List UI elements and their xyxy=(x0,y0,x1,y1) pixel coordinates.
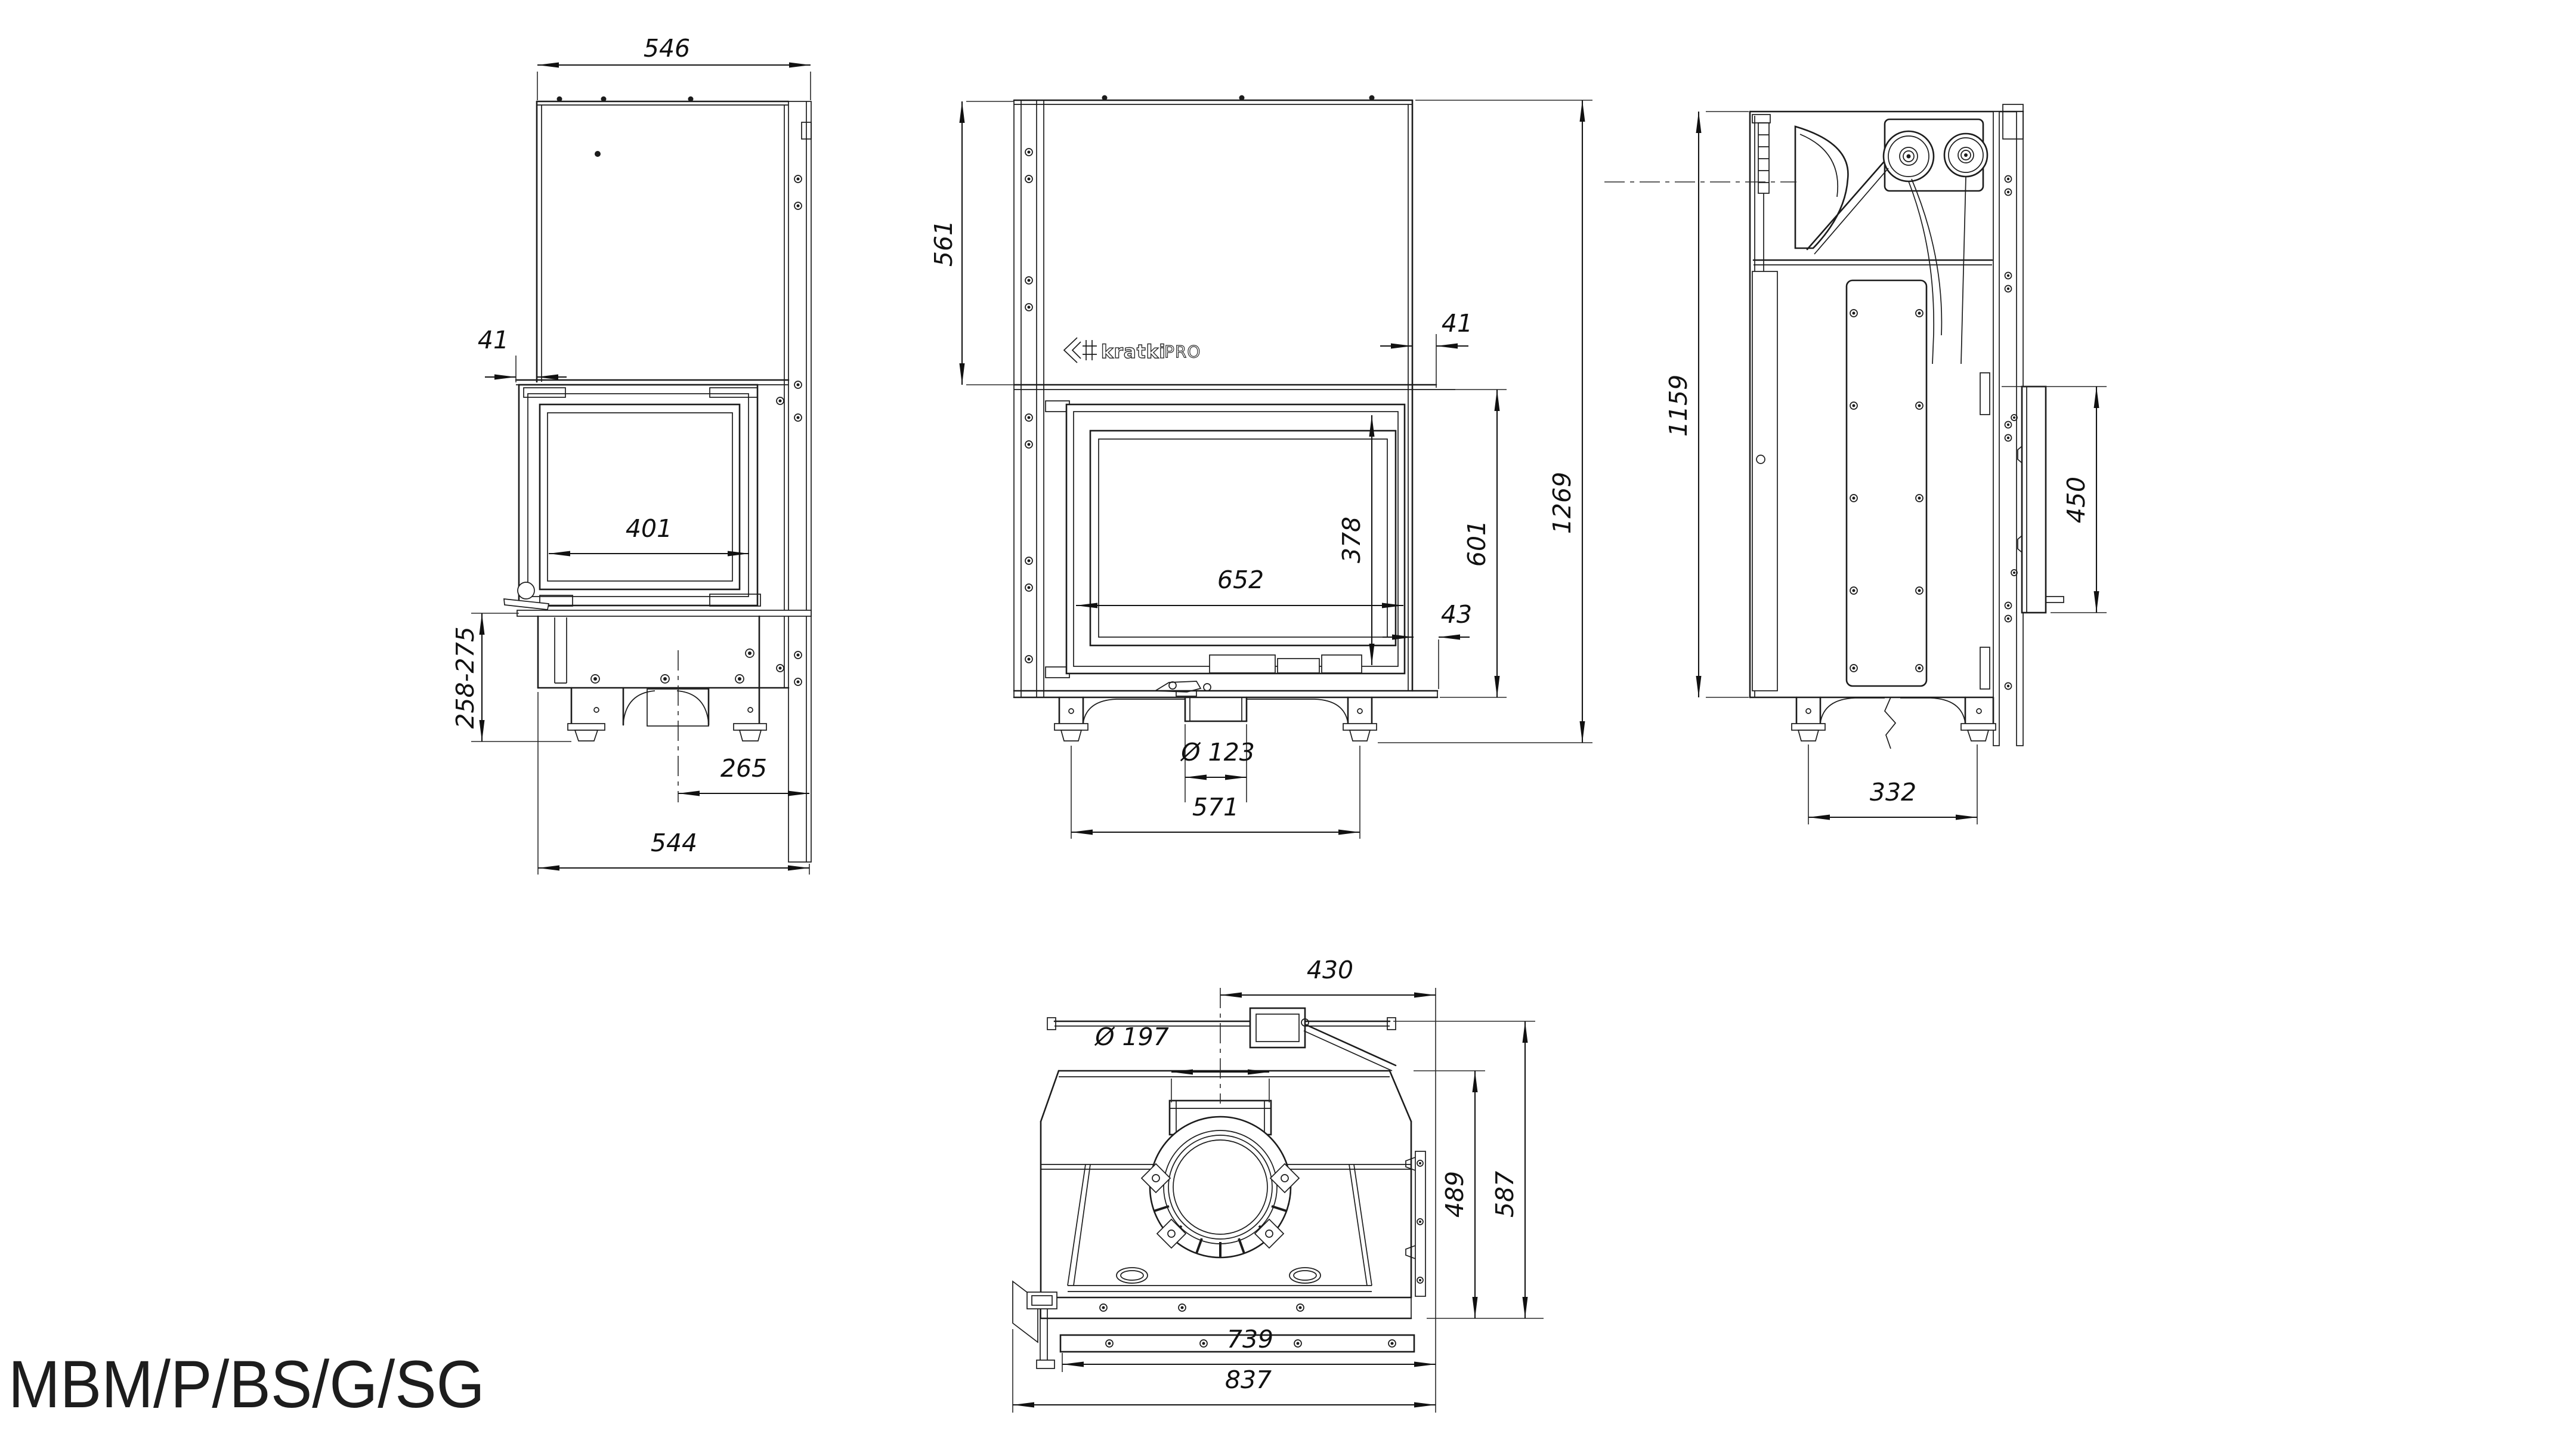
front-base xyxy=(1014,691,1437,741)
logo-brand-text: kratki xyxy=(1101,341,1166,363)
dim-glass-width: 652 xyxy=(1217,566,1264,594)
front-view: kratki PRO xyxy=(929,95,1592,839)
damper-mechanism xyxy=(1604,115,1987,410)
kratki-pro-logo: kratki PRO xyxy=(1064,338,1201,363)
left-bracket xyxy=(1013,1281,1038,1342)
upper-chamber xyxy=(516,97,788,385)
dim-body-width: 739 xyxy=(1227,1325,1273,1354)
dim-glass-height: 378 xyxy=(1337,517,1366,563)
dim-bottom-offset: 43 xyxy=(1441,600,1472,629)
dim-base-height-range: 258-275 xyxy=(451,626,480,728)
dim-mount-bracket-height: 450 xyxy=(2062,477,2091,523)
top-view: 430 Ø 197 489 587 739 837 xyxy=(1013,956,1544,1413)
door-handle xyxy=(1155,681,1201,696)
right-base-legs xyxy=(1792,697,1996,749)
dim-back-offset: 265 xyxy=(720,754,767,783)
air-funnel xyxy=(1795,126,1848,248)
dim-door-offset: 41 xyxy=(478,326,509,354)
logo-chevron-icon xyxy=(1064,338,1077,363)
dim-flue-pipe-diameter: Ø 123 xyxy=(1180,738,1255,767)
dim-total-width: 837 xyxy=(1225,1365,1272,1394)
flue-duct-stub xyxy=(1185,697,1247,721)
dim-back-offset-front: 41 xyxy=(1442,309,1473,338)
side-glass-door xyxy=(504,385,760,610)
technical-drawing-page: 546 41 401 258-275 265 544 xyxy=(0,0,2576,1449)
flue-collar xyxy=(1142,1101,1299,1258)
break-line xyxy=(1885,697,1895,749)
pulley-unit xyxy=(1884,119,1987,191)
dim-firebox-height: 601 xyxy=(1462,520,1491,567)
dim-upper-chamber-height: 561 xyxy=(929,220,958,267)
dim-flue-center-offset: 430 xyxy=(1307,956,1353,984)
back-panel xyxy=(777,101,811,862)
dim-total-height: 1269 xyxy=(1548,472,1576,534)
damper-actuator xyxy=(1250,1008,1396,1071)
dim-top-width: 546 xyxy=(644,34,690,63)
logo-suffix-text: PRO xyxy=(1164,342,1201,362)
dim-leg-spacing-right: 332 xyxy=(1870,778,1916,807)
spring xyxy=(1758,123,1769,193)
dim-leg-spacing: 571 xyxy=(1192,793,1239,821)
model-title: MBM/P/BS/G/SG xyxy=(8,1346,485,1423)
dim-total-depth-top: 587 xyxy=(1490,1171,1519,1218)
inner-panels xyxy=(1752,260,1992,691)
back-screws xyxy=(2005,176,2012,690)
dim-side-glass-width: 401 xyxy=(626,514,672,543)
left-frame-strip xyxy=(1014,100,1069,697)
dim-overall-height: 1159 xyxy=(1664,375,1693,437)
dim-body-depth: 489 xyxy=(1440,1171,1469,1218)
left-side-view: 546 41 401 258-275 265 544 xyxy=(451,34,811,875)
right-side-view: 1159 450 332 xyxy=(1604,104,2107,824)
right-bracket-rail xyxy=(1406,1151,1425,1296)
drawing-sheet: 546 41 401 258-275 265 544 xyxy=(0,0,2576,1449)
dim-collar-diameter: Ø 197 xyxy=(1094,1022,1169,1051)
dim-total-depth: 544 xyxy=(651,829,697,857)
